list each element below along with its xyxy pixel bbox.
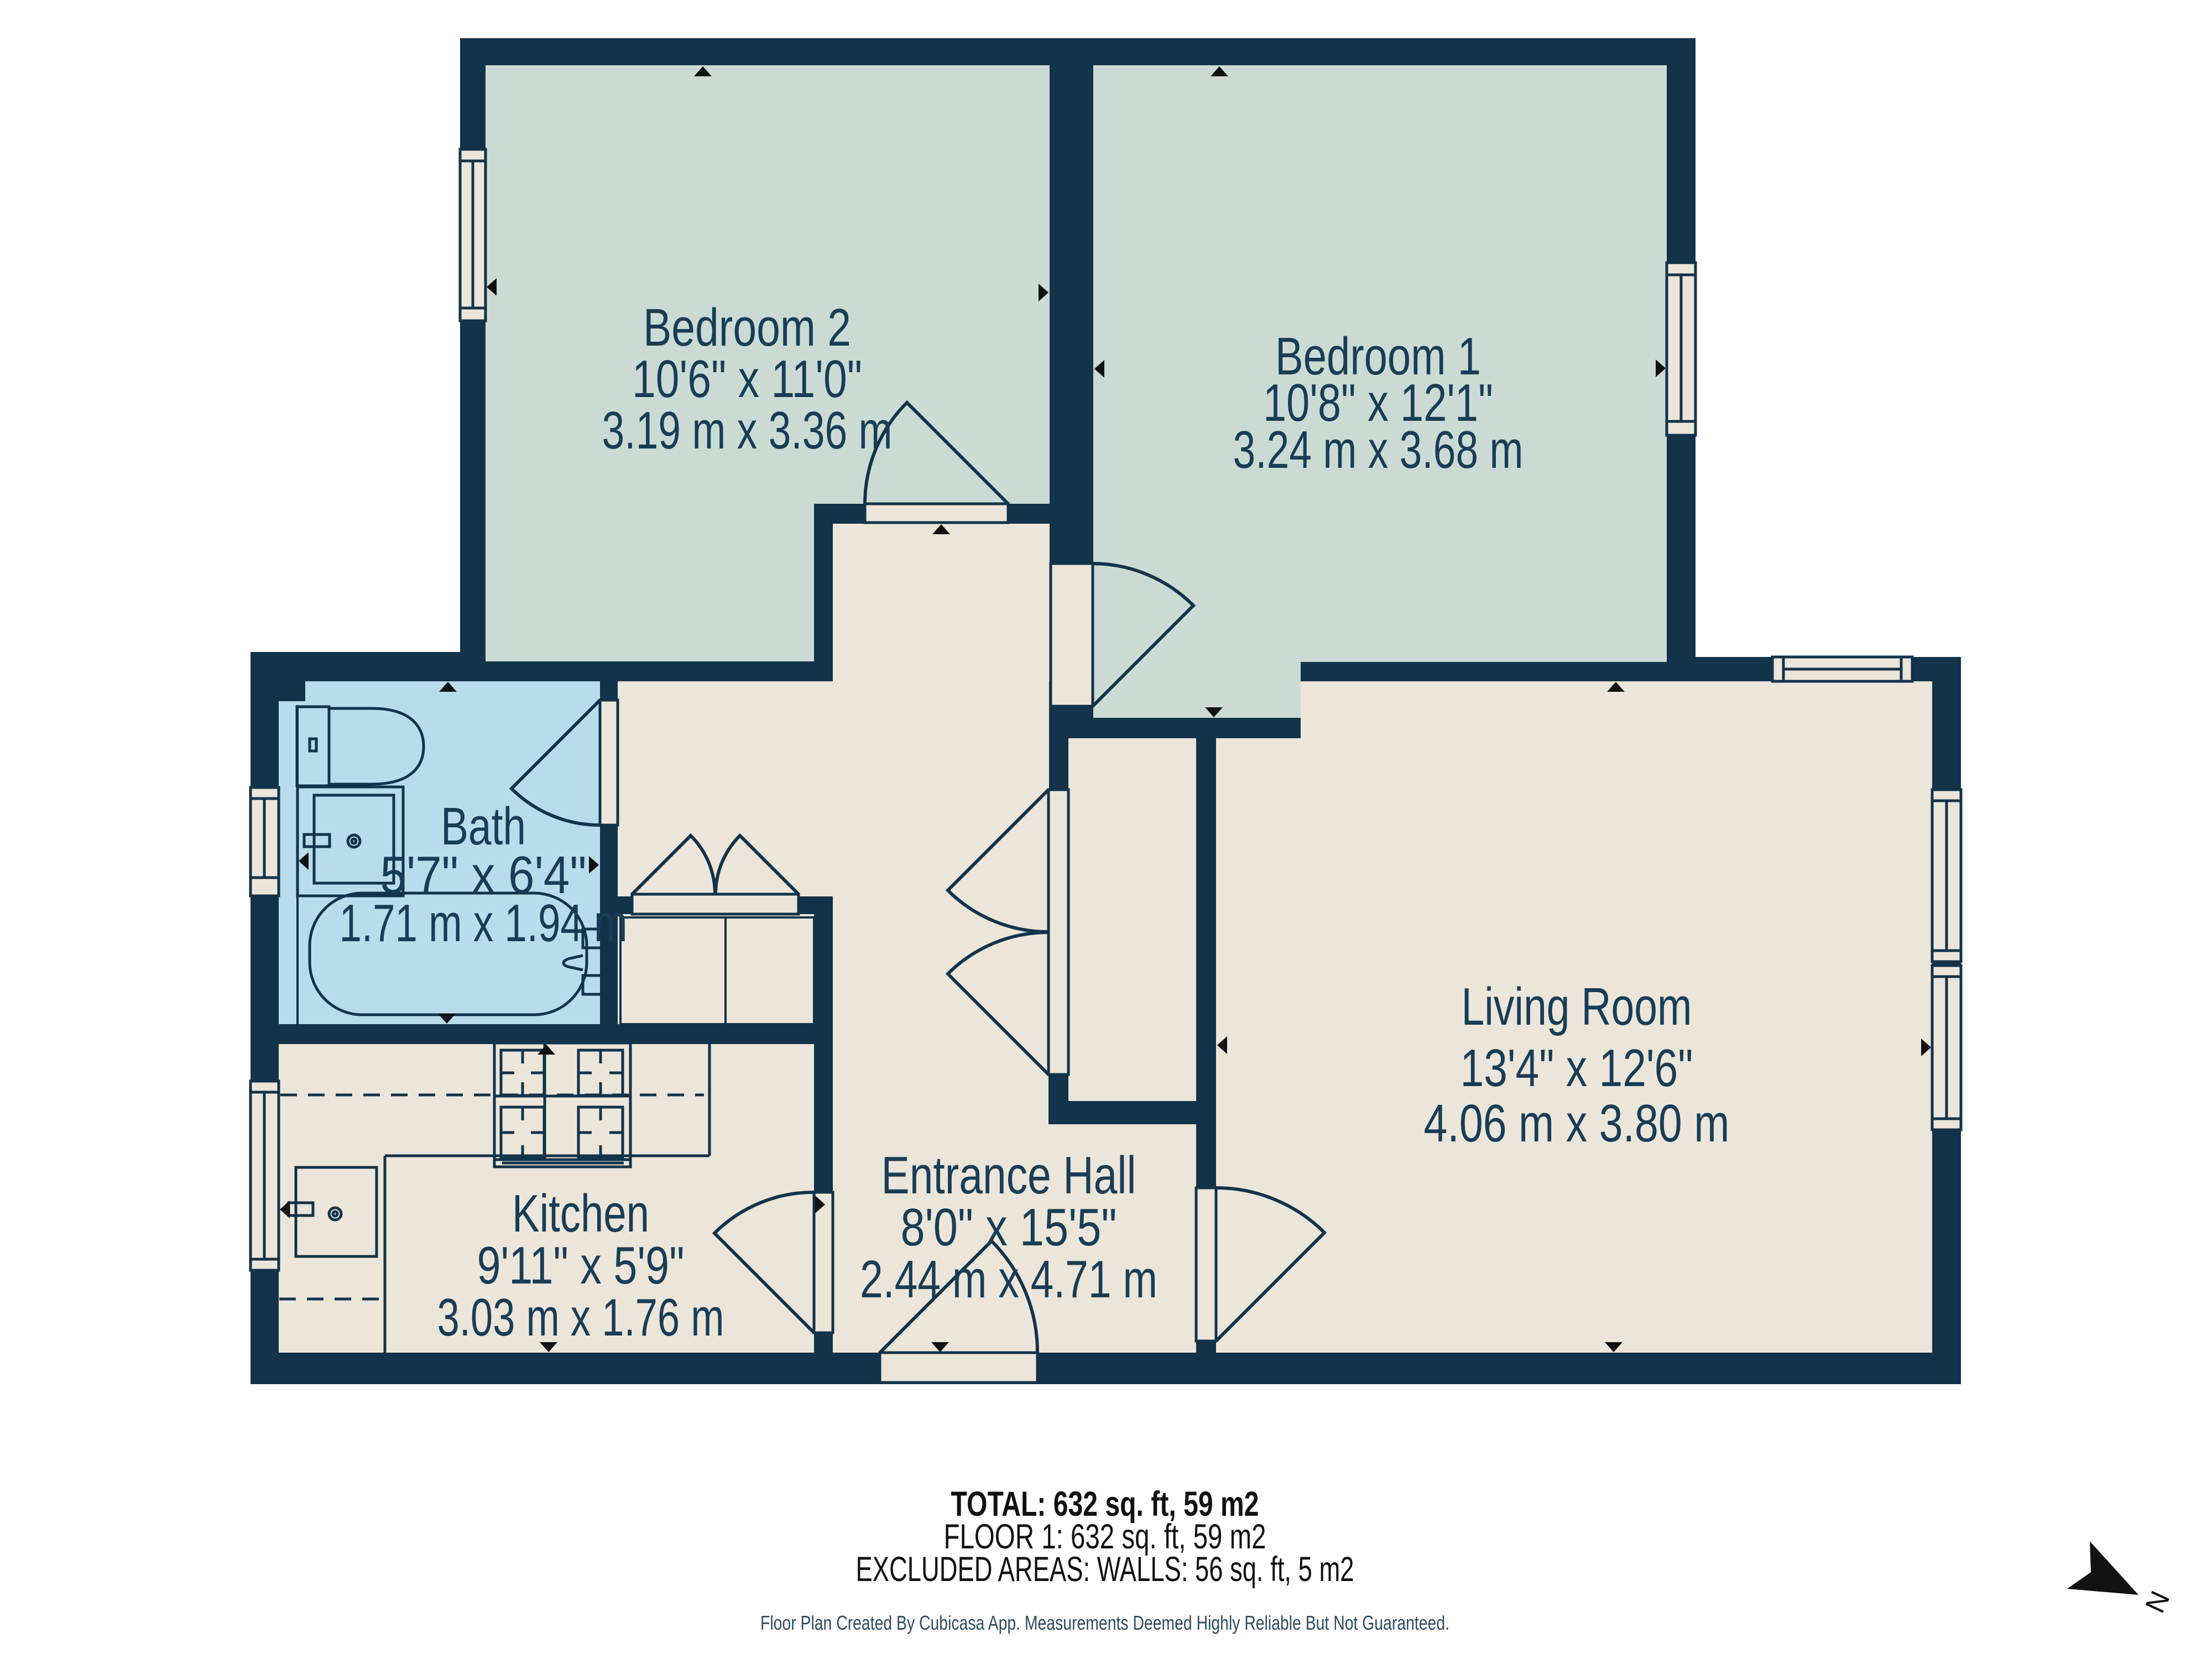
svg-text:13'4" x 12'6": 13'4" x 12'6": [1460, 1039, 1693, 1098]
svg-text:8'0" x 15'5": 8'0" x 15'5": [901, 1198, 1117, 1257]
svg-text:2.44 m x 4.71 m: 2.44 m x 4.71 m: [860, 1250, 1157, 1309]
svg-text:1.71 m x 1.94 m: 1.71 m x 1.94 m: [340, 894, 628, 953]
svg-text:9'11" x 5'9": 9'11" x 5'9": [477, 1236, 685, 1295]
svg-text:Kitchen: Kitchen: [512, 1184, 649, 1243]
svg-text:3.19 m x 3.36 m: 3.19 m x 3.36 m: [602, 401, 893, 460]
svg-text:Floor Plan Created By Cubicasa: Floor Plan Created By Cubicasa App. Meas…: [760, 1611, 1449, 1634]
svg-text:10'6" x 11'0": 10'6" x 11'0": [632, 349, 862, 409]
svg-text:3.03 m x 1.76 m: 3.03 m x 1.76 m: [437, 1288, 724, 1347]
svg-text:EXCLUDED AREAS: WALLS: 56 sq.: EXCLUDED AREAS: WALLS: 56 sq. ft, 5 m2: [856, 1550, 1354, 1589]
svg-text:Bedroom 2: Bedroom 2: [643, 298, 851, 357]
svg-text:4.06 m x 3.80 m: 4.06 m x 3.80 m: [1424, 1094, 1730, 1153]
svg-text:Living Room: Living Room: [1462, 977, 1692, 1036]
svg-text:3.24 m x 3.68 m: 3.24 m x 3.68 m: [1233, 420, 1524, 479]
svg-text:Entrance Hall: Entrance Hall: [881, 1146, 1136, 1205]
